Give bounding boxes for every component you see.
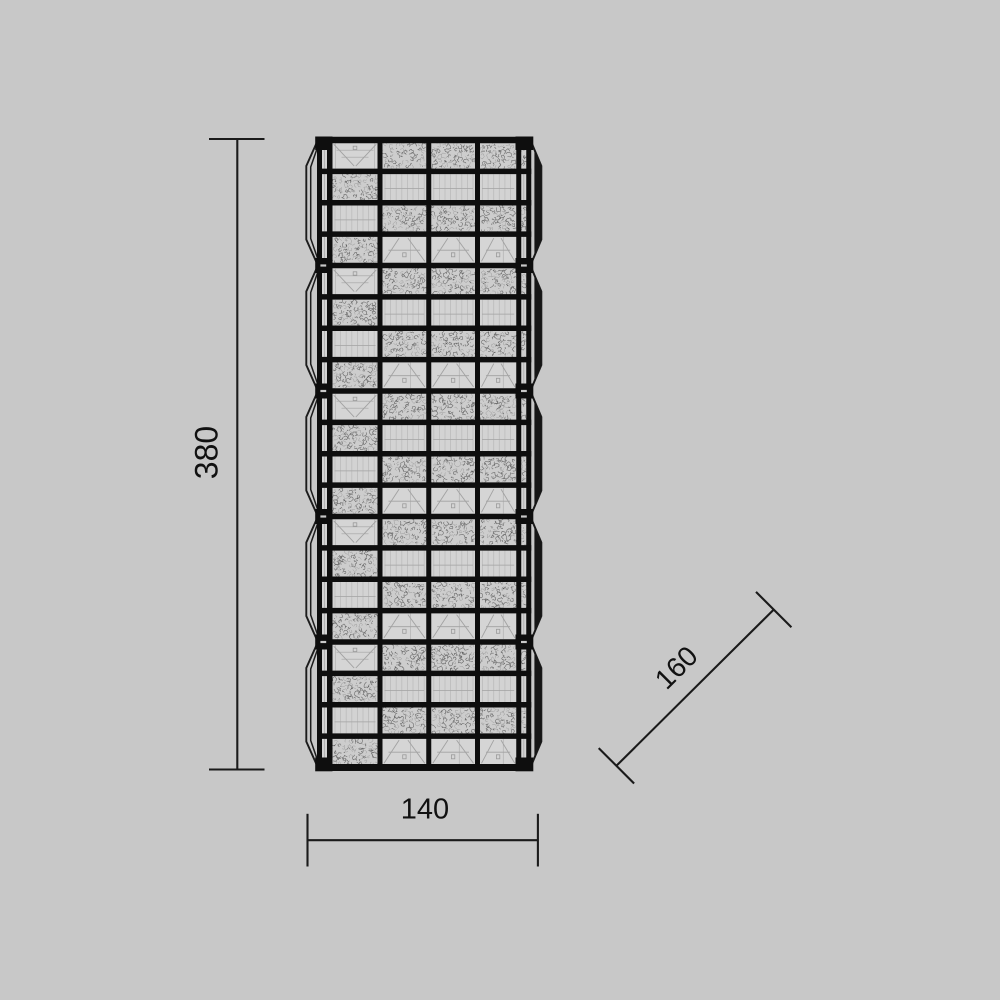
svg-text:140: 140 bbox=[401, 794, 449, 826]
svg-text:380: 380 bbox=[188, 426, 224, 479]
